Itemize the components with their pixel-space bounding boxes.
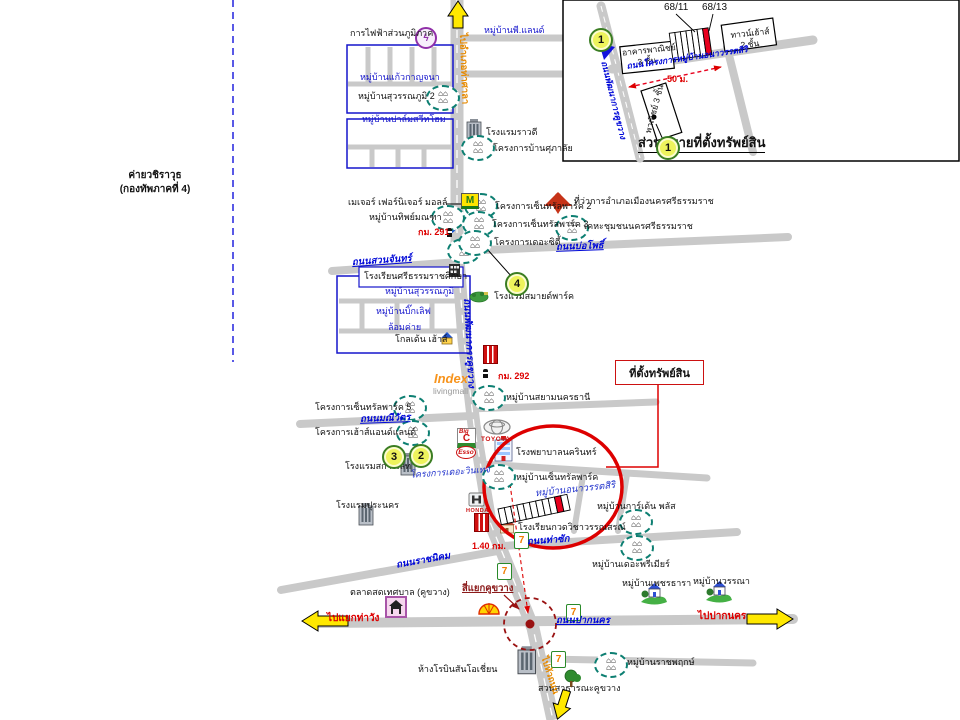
marker-4: 4 xyxy=(505,272,529,296)
label-km292: กม. 292 xyxy=(498,371,529,381)
marker-number: 1 xyxy=(598,34,604,46)
road-label-to-thasala: ไปอำเภอท่าศาลา xyxy=(456,33,469,105)
inset-unit-right: 68/13 xyxy=(702,2,727,14)
esso-icon: Esso xyxy=(456,446,476,459)
label-market: ตลาดสดเทศบาล (คูขวาง) xyxy=(350,587,450,597)
label-robinson: ห้างโรบินสันโอเชี่ยน xyxy=(418,664,497,674)
road-label-to-thawang: ไปแยกท่าวัง xyxy=(327,613,379,625)
marker-number: 4 xyxy=(514,278,520,290)
label-camp-1: ค่ายวชิราวุธ xyxy=(105,170,205,182)
village-icon xyxy=(472,385,506,411)
label-supalai: โครงการบ้านศุภาลัย xyxy=(493,143,573,153)
label-kheha: เคหะชุมชนนครศรีธรรมราช xyxy=(584,221,693,231)
esso-text: Esso xyxy=(458,449,474,456)
label-garden-plus: หมู่บ้านการ์เด้น พลัส xyxy=(597,501,676,511)
label-big-love: หมู่บ้านบิ๊กเลิฟ xyxy=(376,306,431,316)
road-label-to-paknakhon: ไปปากนคร xyxy=(698,611,746,623)
label-camp-2: (กองทัพภาคที่ 4) xyxy=(105,184,205,196)
seven-digit: 7 xyxy=(502,566,508,577)
label-central-park3: โครงการเซ็นทรัลพาร์ค 3 xyxy=(492,219,588,229)
red-shophouse-icon xyxy=(483,345,498,364)
toyota-logo-icon xyxy=(484,420,510,434)
label-thipmontha: หมู่บ้านทิพย์มณฑา xyxy=(369,212,442,222)
arrow-east xyxy=(747,609,793,629)
marker-2: 2 xyxy=(409,444,433,468)
road-label-paknakhon: ถนนปากนคร xyxy=(556,616,610,627)
major-letter: M xyxy=(466,195,474,206)
seven-eleven-icon: 7 xyxy=(497,563,512,580)
label-petchthara: หมู่บ้านเพชรธารา xyxy=(622,578,691,588)
label-wanna: หมู่บ้านวรรณา xyxy=(693,576,750,586)
marker-3: 3 xyxy=(382,445,406,469)
km-marker-icon xyxy=(483,369,488,378)
property-strip xyxy=(498,494,570,524)
label-puranakhon: โรงแรมปุระนคร xyxy=(336,500,399,510)
label-lomkhai: ล้อมค่าย xyxy=(388,322,421,332)
label-the-city: โครงการเดอะซิตี้ xyxy=(494,237,561,247)
village-icon xyxy=(594,652,628,678)
major-furniture-icon: M xyxy=(461,193,479,209)
toyota-text: TOYOTA xyxy=(481,436,510,443)
red-shophouse-icon xyxy=(474,513,489,532)
label-major-mall: เมเจอร์ เฟอร์นิเจอร์ มอลล์ xyxy=(348,197,447,207)
label-siam-nakhonthani: หมู่บ้านสยามนครธานี xyxy=(506,392,590,402)
honda-text: HONDA xyxy=(466,508,489,514)
label-premier: หมู่บ้านเดอะพรีเมียร์ xyxy=(592,559,670,569)
label-house-and-land: โครงการเฮ้าส์แอนด์แลนด์ xyxy=(315,427,416,437)
marker-number: 2 xyxy=(418,450,424,462)
inset-marker-1-road: 1 xyxy=(589,28,613,52)
seven-eleven-icon: 7 xyxy=(551,651,566,668)
honda-logo-icon xyxy=(469,493,484,506)
label-suwannaphum2: หมู่บ้านสุวรรณภูมิ 2 xyxy=(358,91,435,101)
inset-50m-label: 50 ม. xyxy=(667,74,688,84)
village-icon xyxy=(458,230,492,256)
road-label-bopho: ถนนบ่อโพธิ์ xyxy=(556,241,604,254)
label-km291: กม. 291 xyxy=(418,227,449,237)
label-palm-sweet-home: หมู่บ้านปาล์มสวีทโฮม xyxy=(362,114,446,124)
label-pea: การไฟฟ้าส่วนภูมิภาค xyxy=(350,28,433,38)
road-label-maneewat: ถนนมณีวัตร xyxy=(360,413,411,426)
marker-number: 3 xyxy=(391,451,397,463)
label-hospital: โรงพยาบาลนครินทร์ xyxy=(516,447,597,457)
intersection-dot xyxy=(526,620,535,629)
label-distance-140: 1.40 กม. xyxy=(472,541,506,551)
bigc-icon: Big C xyxy=(457,428,476,448)
label-p-land: หมู่บ้านพี.แลนด์ xyxy=(484,25,545,35)
label-central-park5: โครงการเซ็นทรัลพาร์ค 5 xyxy=(315,402,411,412)
inset-marker-1: 1 xyxy=(656,136,680,160)
marker-number: 1 xyxy=(665,142,671,154)
label-central-park2: โครงการเซ็นทรัลพาร์ค 2 xyxy=(495,201,591,211)
label-suwannaphum: หมู่บ้านสุวรรณภูมิ xyxy=(385,286,454,296)
label-rawadee: โรงแรมราวดี xyxy=(486,127,537,137)
seven-digit: 7 xyxy=(556,654,562,665)
map-graphics xyxy=(0,0,960,720)
label-sri-school: โรงเรียนศรีธรรมราชศึกษา xyxy=(364,271,467,281)
village-icon xyxy=(620,535,654,561)
property-location-map: 4 3 2 1 1 ϟ M Big C Esso 7 7 7 7 Index l… xyxy=(0,0,960,720)
label-smile-park: โรงแรมสมายด์พาร์ค xyxy=(494,291,574,301)
market-icon xyxy=(386,597,406,617)
label-wannasorn: โรงเรียนกวดวิชาวรรณสรณ์ xyxy=(518,522,626,532)
label-central-park-village: หมู่บ้านเซ็นทรัลพาร์ค xyxy=(516,472,598,482)
property-box-connector xyxy=(606,384,658,467)
label-khukwang-intersection: สี่แยกคูขวาง xyxy=(462,584,513,595)
label-district-office: ที่ว่าการอำเภอเมืองนครศรีธรรมราช xyxy=(574,196,714,206)
label-kaew-kanjana: หมู่บ้านแก้วกาญจนา xyxy=(360,72,440,82)
shell-icon xyxy=(479,603,499,614)
village-icon xyxy=(461,135,495,161)
property-location-box: ที่ตั้งทรัพย์สิน xyxy=(615,360,704,385)
inset-unit-left: 68/11 xyxy=(664,2,688,14)
index-logo-text: Index xyxy=(434,371,468,386)
label-ratchaphruek: หมู่บ้านราชพฤกษ์ xyxy=(627,657,695,667)
bigc-letter: C xyxy=(458,435,475,443)
label-golden-house: โกลเด้น เฮ้าส์ xyxy=(395,334,448,344)
livingmall-logo-text: livingmall xyxy=(433,386,468,396)
seven-digit: 7 xyxy=(519,535,525,546)
garden-hotel-icon xyxy=(470,292,488,302)
